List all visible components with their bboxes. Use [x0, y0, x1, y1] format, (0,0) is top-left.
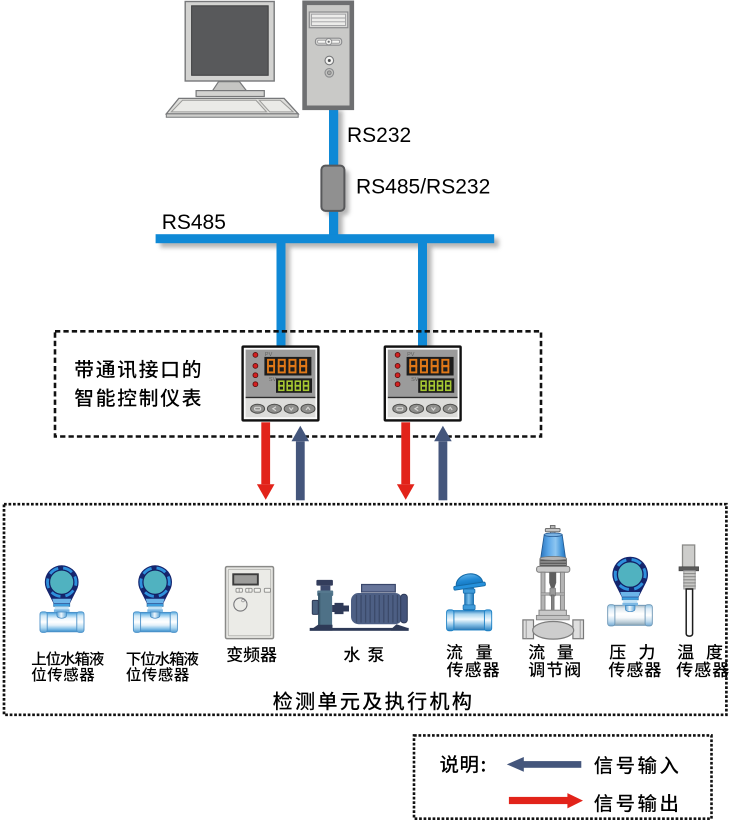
- svg-text:SV: SV: [269, 377, 277, 383]
- svg-text:RS485/RS232: RS485/RS232: [356, 176, 490, 199]
- svg-text:RS485: RS485: [162, 211, 226, 234]
- svg-text:RS232: RS232: [347, 124, 411, 147]
- svg-text:SV: SV: [411, 377, 419, 383]
